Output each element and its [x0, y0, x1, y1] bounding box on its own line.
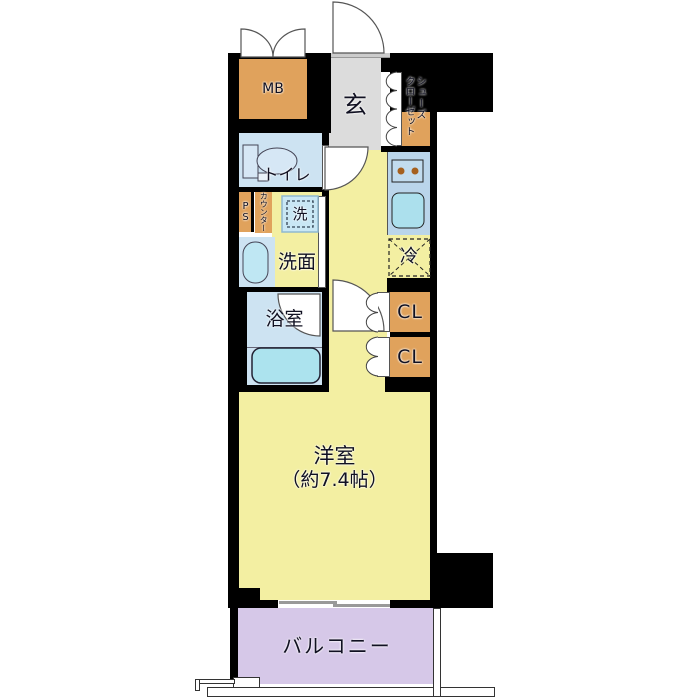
- shoe-closet-label-line2: クローゼット: [402, 76, 414, 144]
- entrance-label: 玄: [329, 60, 381, 150]
- washroom-label: 洗面: [272, 240, 322, 285]
- main-room-label: 洋室 （約7.4帖）: [239, 440, 430, 496]
- closet-lower-door-arc-1: [366, 337, 378, 357]
- vanity-basin: [243, 242, 268, 283]
- shoe-closet-door-arc-1: [386, 72, 397, 91]
- counter-label: カウンター: [255, 191, 272, 233]
- shoe-closet-door-arc-3: [386, 109, 397, 128]
- floor-plan: MB 玄 シューズ クローゼット トイレ PS カウンター 洗 洗面 冷 浴室 …: [0, 0, 700, 700]
- toilet-label: トイレ: [245, 140, 328, 184]
- main-room-size: （約7.4帖）: [281, 469, 387, 492]
- pipe-space-label: PS: [239, 192, 251, 232]
- stove-burner-right: [412, 168, 419, 175]
- bathroom-label: 浴室: [247, 292, 322, 347]
- stove-burner-left: [398, 168, 405, 175]
- shoe-closet-label-line1: シューズ: [413, 76, 425, 138]
- shoe-closet-door-arc-2: [386, 91, 397, 110]
- closet-upper-label: CL: [390, 292, 430, 332]
- mb-label: MB: [239, 59, 307, 119]
- main-room-name: 洋室: [314, 444, 356, 469]
- closet-lower-door-arc-2: [366, 357, 378, 377]
- shoe-closet-door-arc-4: [386, 128, 397, 147]
- mb-door-left-arc: [241, 29, 273, 57]
- entrance-door-arc: [333, 2, 384, 53]
- closet-lower-label: CL: [390, 337, 430, 377]
- fridge-label: 冷: [388, 238, 430, 276]
- balcony-label: バルコニー: [237, 608, 437, 684]
- bathtub: [252, 348, 320, 383]
- mb-door-right-arc: [273, 29, 305, 57]
- kitchen-sink: [392, 193, 424, 228]
- washer-label: 洗: [282, 196, 318, 232]
- corridor-door-arc: [325, 147, 368, 190]
